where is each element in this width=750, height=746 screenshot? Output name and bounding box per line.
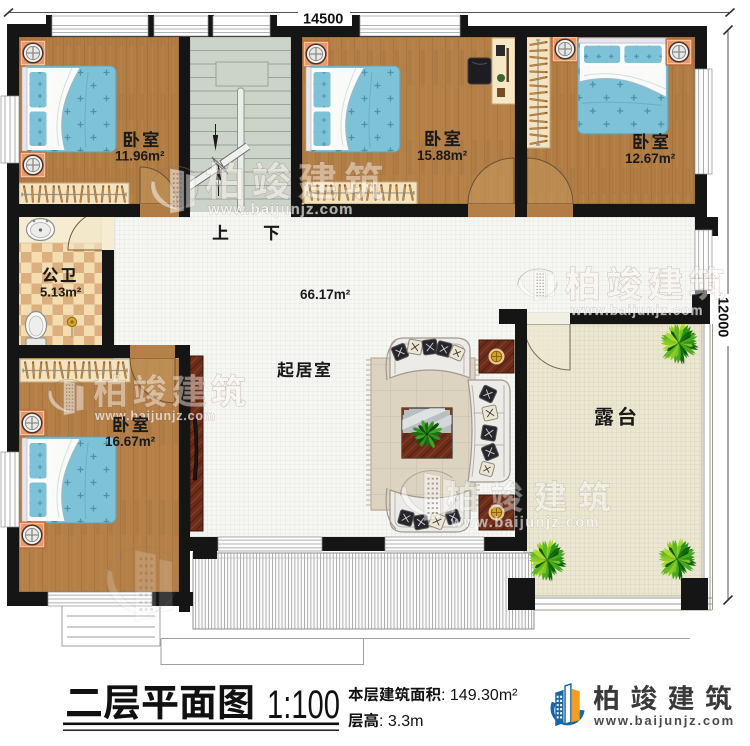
svg-text:11.96m²: 11.96m² <box>115 149 165 164</box>
svg-text:: 3.3m: : 3.3m <box>379 713 423 730</box>
svg-text:www.baijunjz.com: www.baijunjz.com <box>207 201 353 218</box>
svg-text:15.88m²: 15.88m² <box>417 148 468 163</box>
svg-text:66.17m²: 66.17m² <box>300 287 351 302</box>
svg-text:www.baijunjz.com: www.baijunjz.com <box>570 303 704 318</box>
svg-text:12.67m²: 12.67m² <box>625 151 676 166</box>
svg-text:12000: 12000 <box>715 297 731 337</box>
svg-text:www.baijunjz.com: www.baijunjz.com <box>94 409 216 423</box>
svg-text:16.67m²: 16.67m² <box>105 434 156 449</box>
svg-text:5.13m²: 5.13m² <box>40 285 82 300</box>
svg-text:1:100: 1:100 <box>267 683 340 727</box>
svg-text:: 149.30m²: : 149.30m² <box>441 687 518 704</box>
svg-text:www.baijunjz.com: www.baijunjz.com <box>450 515 600 531</box>
svg-text:www.baijunjz.com: www.baijunjz.com <box>593 713 735 728</box>
svg-text:14500: 14500 <box>303 12 343 28</box>
